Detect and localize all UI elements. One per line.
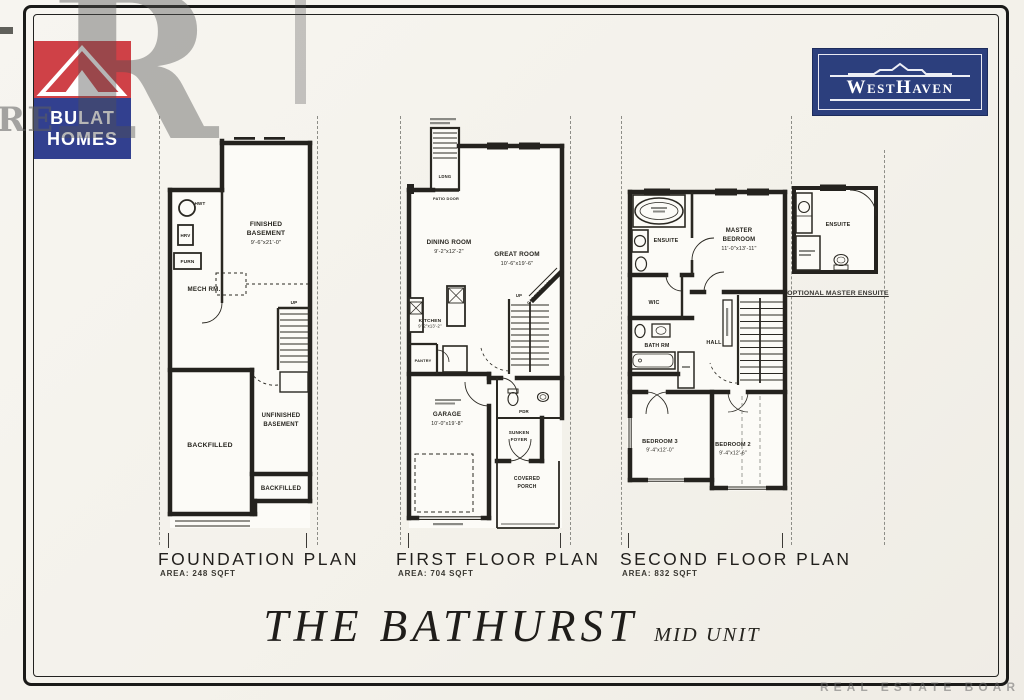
model-name-title: THE BATHURST [263,600,638,652]
optional-ensuite-drawing: ENSUITE [786,180,890,290]
room-label-porch-2: PORCH [517,484,536,490]
room-label-garage: GARAGE [433,411,461,418]
bulat-logo-line2: HOMES [47,129,118,149]
westhaven-rule-bottom [830,99,969,101]
label-up: UP [291,300,298,305]
room-label-finished-basement: FINISHED [250,221,282,228]
room-label-pantry: PANTRY [415,358,432,363]
room-label-bath: BATH RM [645,343,670,349]
label-furn: FURN [180,259,194,265]
bulat-logo-line1: BULAT [50,108,115,128]
title-tick [168,533,169,548]
room-label-unfinished-2: BASEMENT [263,422,298,428]
watermark-real-estate: REAL ESTATE BOAR [820,680,1020,694]
unit-type-subtitle: MID UNIT [654,624,761,647]
dim-bedroom2: 9'-4"x12'-6" [719,451,747,457]
room-label-ensuite: ENSUITE [654,238,679,244]
bulat-logo-red-field [34,41,131,98]
westhaven-logo: WestHaven [812,48,988,116]
plan-title-second: SECOND FLOOR PLAN [620,549,851,570]
room-label-dining: DINING ROOM [427,239,472,246]
westhaven-wordmark: WestHaven [846,77,953,99]
room-label-pdr: PDR [519,409,529,414]
house-triangle-icon [34,41,131,98]
optional-ensuite-caption: OPTIONAL MASTER ENSUITE [783,290,893,297]
plan-area-foundation: AREA: 248 SQFT [160,569,236,578]
first-floor-plan-drawing: LDNG PATIO DOOR GREAT ROOM 10'-6"x19'-6"… [397,116,573,546]
room-label-mech: MECH RM. [188,286,221,293]
westhaven-inner-frame: WestHaven [818,54,982,110]
room-label-bedroom2: BEDROOM 2 [715,442,751,448]
label-ldng: LDNG [439,174,452,179]
dim-great-room: 10'-6"x19'-6" [501,261,534,267]
roofline-icon [840,63,960,75]
dim-dining: 9'-2"x12'-2" [434,249,464,255]
room-label-backfilled-lower: BACKFILLED [261,486,302,492]
watermark-re: RE [0,100,55,140]
plan-area-first: AREA: 704 SQFT [398,569,474,578]
title-tick [628,533,629,548]
sheet-footer: THE BATHURST MID UNIT [0,600,1024,652]
dim-bedroom3: 9'-4"x12'-0" [646,448,674,454]
plan-area-second: AREA: 832 SQFT [622,569,698,578]
dim-finished-basement: 9'-6"x21'-0" [251,240,282,246]
room-label-finished-basement-2: BASEMENT [247,230,286,237]
label-patio-door: PATIO DOOR [433,196,459,201]
plan-title-foundation: FOUNDATION PLAN [158,549,359,570]
title-tick [560,533,561,548]
scan-smudge [0,27,13,34]
room-label-master: MASTER [726,228,753,234]
label-hrv: HRV [180,233,190,238]
room-label-sunken-foyer-2: FOYER [511,437,528,442]
plan-title-first: FIRST FLOOR PLAN [396,549,600,570]
second-floor-plan-drawing: ENSUITE MASTER BEDROOM 11'-0"x13'-11" WI… [620,180,796,512]
room-label-hall: HALL [706,340,722,346]
scanned-floorplan-page: R RE REAL ESTATE BOAR BULAT HOMES WestHa… [0,0,1024,700]
room-label-wic: WIC [648,300,659,306]
scan-smudge [295,0,306,104]
label-hwt: HWT [195,201,206,206]
dim-kitchen: 9'-2"x13'-2" [418,324,442,329]
tiny-note-text [430,118,456,124]
label-up: UP [516,293,522,298]
foundation-plan-drawing: HWT HRV FURN MECH RM. FINISHED BASEMENT … [160,133,320,545]
room-label-sunken-foyer: SUNKEN [509,430,530,435]
room-label-optional-ensuite: ENSUITE [826,222,851,228]
room-label-master-2: BEDROOM [723,237,756,243]
room-label-unfinished: UNFINISHED [262,413,301,419]
room-label-porch: COVERED [514,476,540,482]
room-label-backfilled: BACKFILLED [187,442,232,449]
room-label-bedroom3: BEDROOM 3 [642,439,678,445]
title-tick [306,533,307,548]
title-tick [408,533,409,548]
dim-master: 11'-0"x13'-11" [721,246,756,252]
title-tick [782,533,783,548]
dim-garage: 10'-0"x19'-8" [431,421,463,427]
room-label-great-room: GREAT ROOM [494,251,540,258]
